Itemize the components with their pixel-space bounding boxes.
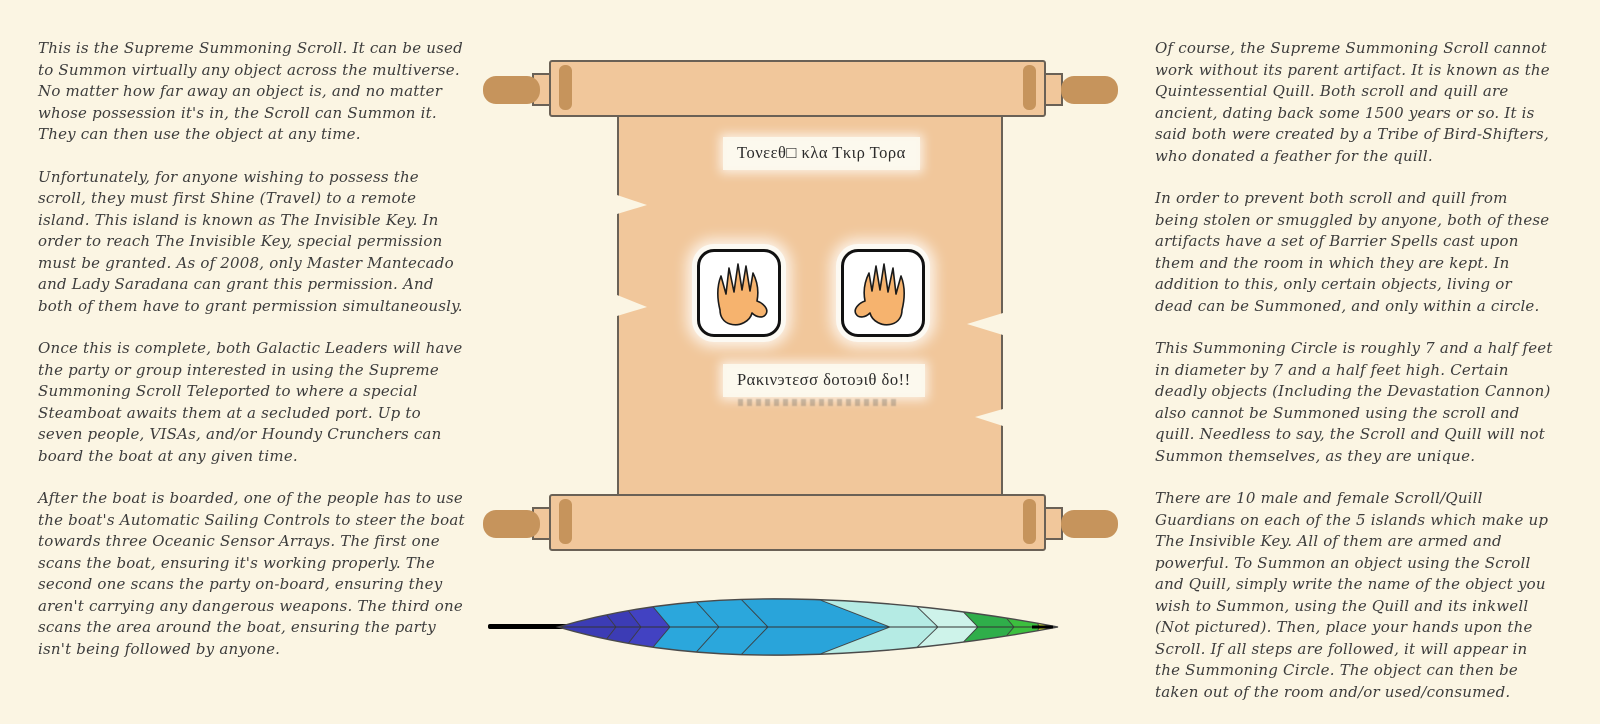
hand-print-left-box — [697, 249, 781, 337]
parchment-notch-right-2 — [975, 409, 1003, 426]
left-text-column: This is the Supreme Summoning Scroll. It… — [38, 38, 466, 681]
scroll-incantation-text: Ρακινэτεσσ δοτοэιθ δο!! — [727, 368, 921, 393]
roller-ring — [559, 65, 572, 110]
parchment-notch-left-1 — [617, 195, 647, 214]
paragraph-guardians: There are 10 male and female Scroll/Quil… — [1155, 488, 1553, 703]
scroll-lore-page: This is the Supreme Summoning Scroll. It… — [0, 0, 1600, 716]
hand-icon — [844, 252, 922, 334]
hand-print-right-box — [841, 249, 925, 337]
paragraph-invisible-key: Unfortunately, for anyone wishing to pos… — [38, 167, 466, 318]
paragraph-barrier-spells: In order to prevent both scroll and quil… — [1155, 188, 1553, 317]
paragraph-quintessential-quill: Of course, the Supreme Summoning Scroll … — [1155, 38, 1553, 167]
roller-ring — [1023, 499, 1036, 544]
paragraph-sensor-arrays: After the boat is boarded, one of the pe… — [38, 488, 466, 660]
paragraph-summoning-circle: This Summoning Circle is roughly 7 and a… — [1155, 338, 1553, 467]
roller-connector-top-right — [1043, 73, 1063, 106]
roller-handle-bottom-right — [1061, 510, 1118, 538]
roller-handle-top-left — [483, 76, 540, 104]
paragraph-scroll-intro: This is the Supreme Summoning Scroll. It… — [38, 38, 466, 146]
parchment-notch-right-1 — [967, 313, 1003, 335]
roller-ring — [1023, 65, 1036, 110]
scroll-title-text: Τονεεθ□ κλα Τκιρ Τορα — [727, 141, 916, 166]
roller-ring — [559, 499, 572, 544]
roller-handle-top-right — [1061, 76, 1118, 104]
roller-connector-bottom-right — [1043, 507, 1063, 540]
hand-icon — [700, 252, 778, 334]
faded-ghost-text — [738, 399, 896, 406]
parchment-sheet — [617, 112, 1003, 494]
scroll-roller-top — [549, 60, 1046, 117]
quill-feather — [470, 585, 1070, 665]
roller-handle-bottom-left — [483, 510, 540, 538]
right-text-column: Of course, the Supreme Summoning Scroll … — [1155, 38, 1553, 724]
parchment-notch-left-2 — [617, 295, 647, 316]
scroll-roller-bottom — [549, 494, 1046, 551]
paragraph-steamboat: Once this is complete, both Galactic Lea… — [38, 338, 466, 467]
